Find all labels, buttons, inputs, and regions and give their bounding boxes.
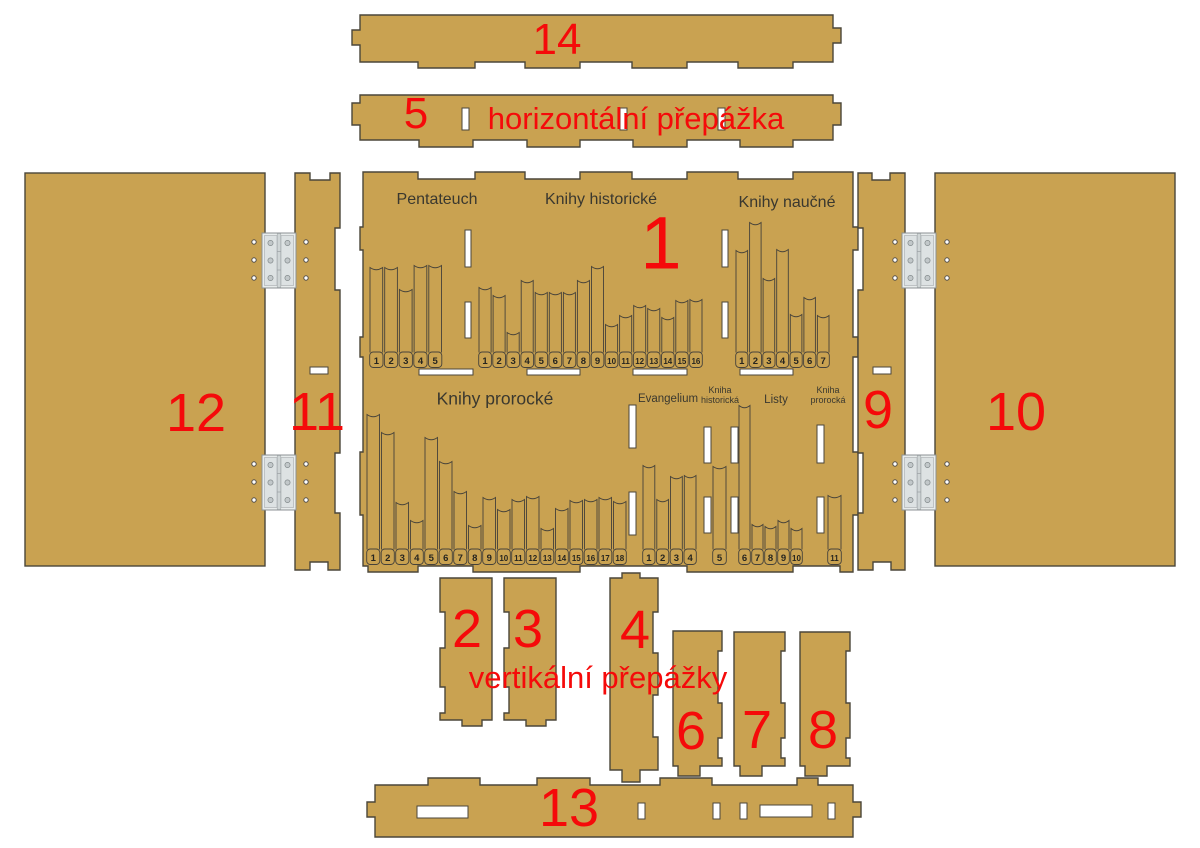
screw-hole	[945, 258, 949, 262]
part-10-right-door	[935, 173, 1175, 566]
book-number: 3	[403, 356, 408, 367]
book-number: 9	[595, 356, 600, 367]
hinge	[902, 455, 936, 510]
book-number: 3	[400, 553, 405, 564]
book-number: 9	[781, 553, 786, 564]
slot-cutout	[817, 425, 824, 463]
hinge	[902, 233, 936, 288]
laser-cut-bookshelf-plan: 1234512345678910111213141516123456712345…	[0, 0, 1200, 848]
screw-hole	[893, 462, 897, 466]
slot-cutout	[465, 230, 471, 267]
book-number: 1	[739, 356, 745, 367]
screw-hole	[304, 258, 308, 262]
screw-hole	[252, 240, 256, 244]
screw-hole	[252, 462, 256, 466]
book-number: 5	[717, 553, 723, 564]
book-number: 2	[385, 553, 390, 564]
slot-cutout	[633, 369, 687, 375]
book-number: 13	[543, 554, 552, 563]
slot-cutout	[731, 497, 738, 533]
book-number: 5	[433, 356, 439, 367]
hinge	[262, 233, 296, 288]
book-number: 7	[821, 356, 826, 367]
book-number: 8	[581, 356, 586, 367]
book-number: 4	[780, 356, 786, 367]
part-6-vertical-divider	[673, 631, 722, 776]
book-number: 13	[649, 357, 658, 366]
book-number: 11	[830, 554, 839, 563]
slot-cutout	[465, 302, 471, 338]
slot-cutout	[419, 369, 473, 375]
book-number: 4	[687, 553, 693, 564]
screw-hole	[945, 462, 949, 466]
part-2-vertical-divider	[440, 578, 492, 726]
book-number: 17	[601, 554, 610, 563]
book-number: 11	[621, 357, 630, 366]
part-3-vertical-divider	[504, 578, 556, 726]
screw-hole	[252, 480, 256, 484]
screw-hole	[304, 240, 308, 244]
book-number: 2	[660, 553, 665, 564]
screw-hole	[252, 498, 256, 502]
book-number: 3	[674, 553, 679, 564]
book-number: 6	[807, 356, 812, 367]
book-number: 14	[663, 357, 672, 366]
book-number: 7	[458, 553, 463, 564]
screw-hole	[252, 276, 256, 280]
screw-hole	[304, 498, 308, 502]
book-number: 15	[677, 357, 686, 366]
slot-cutout	[704, 427, 711, 463]
screw-hole	[945, 240, 949, 244]
book-number: 10	[499, 554, 508, 563]
book-number: 10	[607, 357, 616, 366]
book-number: 2	[496, 356, 501, 367]
book-number: 9	[487, 553, 492, 564]
book-number: 6	[443, 553, 448, 564]
book-number: 16	[691, 357, 700, 366]
slot-cutout	[629, 492, 636, 535]
book-number: 1	[374, 356, 380, 367]
screw-hole	[893, 480, 897, 484]
slot-cutout	[740, 369, 793, 375]
slot-cutout	[527, 369, 580, 375]
part-14-top-panel	[352, 15, 841, 68]
screw-hole	[304, 462, 308, 466]
book-number: 16	[586, 554, 595, 563]
book-number: 8	[472, 553, 477, 564]
parts-diagram: 1234512345678910111213141516123456712345…	[0, 0, 1200, 848]
book-number: 4	[525, 356, 531, 367]
hinge	[262, 455, 296, 510]
slot-cutout	[417, 806, 468, 818]
slot-cutout	[310, 367, 328, 374]
slot-cutout	[722, 302, 728, 338]
part-4-vertical-divider	[610, 573, 658, 782]
book-number: 8	[768, 553, 773, 564]
book-number: 7	[567, 356, 572, 367]
slot-cutout	[760, 805, 812, 817]
slot-cutout	[828, 803, 835, 819]
slot-cutout	[620, 108, 627, 130]
book-number: 3	[766, 356, 771, 367]
book-number: 12	[635, 357, 644, 366]
book-number: 5	[539, 356, 545, 367]
book-number: 5	[793, 356, 799, 367]
slot-cutout	[718, 108, 725, 130]
screw-hole	[252, 258, 256, 262]
slot-cutout	[731, 427, 738, 463]
screw-hole	[893, 240, 897, 244]
slot-cutout	[638, 803, 645, 819]
book-number: 4	[418, 356, 424, 367]
slot-cutout	[873, 367, 891, 374]
screw-hole	[945, 498, 949, 502]
book-number: 2	[388, 356, 393, 367]
screw-hole	[945, 480, 949, 484]
book-number: 1	[482, 356, 488, 367]
book-number: 6	[553, 356, 558, 367]
book-number: 15	[572, 554, 581, 563]
book-number: 14	[557, 554, 566, 563]
part-12-left-door	[25, 173, 265, 566]
screw-hole	[945, 276, 949, 280]
slot-cutout	[817, 497, 824, 533]
screw-hole	[893, 276, 897, 280]
screw-hole	[304, 480, 308, 484]
slot-cutout	[704, 497, 711, 533]
slot-cutout	[462, 108, 469, 130]
screw-hole	[893, 258, 897, 262]
book-number: 1	[371, 553, 377, 564]
book-number: 12	[528, 554, 537, 563]
book-number: 1	[646, 553, 652, 564]
slot-cutout	[740, 803, 747, 819]
part-8-vertical-divider	[800, 632, 850, 776]
part-5-horizontal-divider	[352, 95, 841, 147]
book-number: 6	[742, 553, 747, 564]
book-number: 4	[414, 553, 420, 564]
screw-hole	[893, 498, 897, 502]
book-number: 10	[792, 554, 801, 563]
book-number: 7	[755, 553, 760, 564]
book-number: 11	[514, 554, 523, 563]
part-7-vertical-divider	[734, 632, 785, 776]
book-number: 2	[753, 356, 758, 367]
book-number: 3	[510, 356, 515, 367]
slot-cutout	[713, 803, 720, 819]
book-number: 5	[429, 553, 435, 564]
screw-hole	[304, 276, 308, 280]
book-number: 18	[615, 554, 624, 563]
slot-cutout	[722, 230, 728, 267]
slot-cutout	[629, 405, 636, 448]
